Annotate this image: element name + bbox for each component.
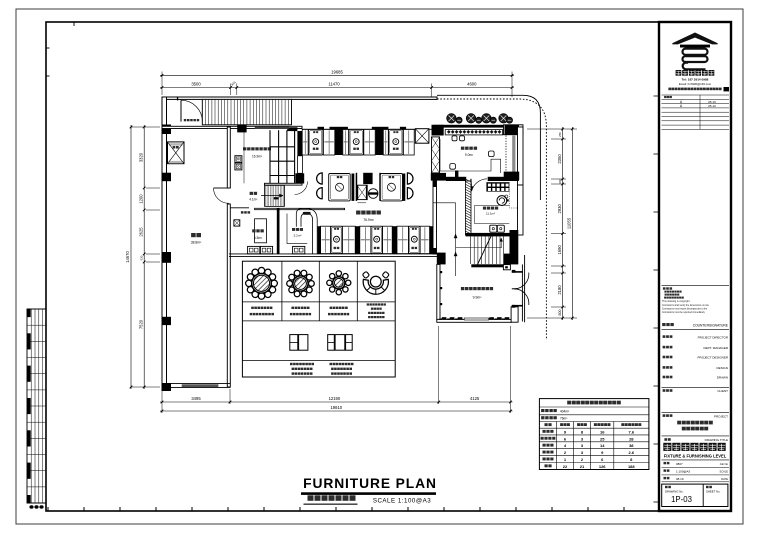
svg-text:DATE: DATE [721, 477, 728, 481]
svg-text:SCALE 1:100@A3: SCALE 1:100@A3 [373, 498, 431, 505]
svg-text:DRAWING No.: DRAWING No. [665, 489, 684, 493]
svg-text:1200: 1200 [138, 194, 143, 204]
svg-text:SHEET No.: SHEET No. [706, 489, 721, 493]
svg-text:16: 16 [600, 429, 605, 434]
svg-text:11470: 11470 [328, 82, 340, 87]
svg-text:COUNTERSIGNATURE: COUNTERSIGNATURE [693, 324, 729, 328]
svg-text:404m²: 404m² [560, 409, 569, 413]
svg-text:5.2m²: 5.2m² [294, 234, 302, 238]
svg-text:25: 25 [600, 436, 605, 441]
svg-text:3320: 3320 [138, 152, 143, 162]
svg-text:Contractors shall verify the d: Contractors shall verify the dimensions … [662, 304, 710, 307]
svg-text:188: 188 [628, 464, 635, 469]
svg-text:3495: 3495 [191, 396, 201, 401]
svg-text:PROJECT DESIGNER: PROJECT DESIGNER [698, 356, 729, 360]
svg-text:7.6: 7.6 [629, 429, 635, 434]
svg-text:0807: 0807 [676, 462, 683, 466]
svg-text:530: 530 [139, 255, 143, 260]
svg-text:4600: 4600 [467, 82, 477, 87]
svg-text:This drawing is copyright: This drawing is copyright [662, 300, 690, 303]
svg-text:76m²: 76m² [560, 417, 567, 421]
svg-text:DEPT. MANAGER: DEPT. MANAGER [703, 346, 728, 350]
svg-text:SCALE: SCALE [719, 469, 728, 473]
svg-text:76.9m²: 76.9m² [363, 218, 374, 222]
svg-text:05.10: 05.10 [708, 104, 716, 108]
svg-text:38.8m²: 38.8m² [191, 241, 202, 245]
svg-text:9.0m²: 9.0m² [465, 153, 473, 157]
svg-text:FIXTURE & FURNISHING LEVEL: FIXTURE & FURNISHING LEVEL [664, 453, 727, 458]
svg-text:22: 22 [563, 464, 568, 469]
svg-text:3500: 3500 [191, 82, 201, 87]
svg-text:FURNITURE PLAN: FURNITURE PLAN [303, 476, 437, 491]
svg-text:21: 21 [580, 464, 585, 469]
svg-text:Contractors must be reported i: Contractors must be reported immediately [662, 311, 706, 314]
svg-text:4125: 4125 [470, 396, 480, 401]
svg-text:250: 250 [558, 132, 562, 137]
svg-text:300: 300 [558, 179, 562, 184]
svg-text:7520: 7520 [138, 319, 143, 329]
svg-text:19810: 19810 [330, 405, 342, 410]
svg-text:2180: 2180 [557, 285, 562, 295]
svg-text:1690: 1690 [557, 244, 562, 254]
svg-text:1P-03: 1P-03 [671, 495, 692, 504]
svg-text:PROJECT DIRECTOR: PROJECT DIRECTOR [698, 335, 729, 339]
svg-text:11055: 11055 [567, 217, 572, 229]
svg-text:PROJECT: PROJECT [714, 414, 728, 418]
svg-text:Job No: Job No [720, 462, 729, 466]
svg-text:38: 38 [629, 443, 634, 448]
svg-text:Tel: 187 2914 0988: Tel: 187 2914 0988 [682, 77, 709, 81]
svg-text:2350: 2350 [557, 154, 562, 164]
svg-text:DRAWING TITLE: DRAWING TITLE [705, 438, 728, 442]
svg-text:2.6: 2.6 [629, 450, 635, 455]
svg-text:1:100@A3: 1:100@A3 [676, 469, 691, 473]
svg-text:4.5m²: 4.5m² [254, 236, 262, 240]
svg-text:12190: 12190 [329, 396, 341, 401]
svg-text:11.1m²: 11.1m² [486, 211, 495, 215]
svg-text:08.19: 08.19 [676, 477, 684, 481]
svg-text:28: 28 [629, 436, 634, 441]
svg-text:4.1m²: 4.1m² [249, 198, 257, 202]
svg-text:CLIENT: CLIENT [717, 389, 728, 393]
svg-text:Contractors must report discre: Contractors must report discrepancies to… [662, 307, 708, 310]
svg-text:19685: 19685 [331, 70, 343, 75]
svg-text:Email: hzh930@163.com: Email: hzh930@163.com [679, 82, 712, 86]
svg-text:126: 126 [599, 464, 606, 469]
svg-text:14: 14 [600, 443, 605, 448]
svg-text:16.9m²: 16.9m² [252, 154, 262, 158]
svg-text:800: 800 [558, 310, 562, 316]
svg-text:DESIGN: DESIGN [716, 366, 728, 370]
svg-text:2930: 2930 [557, 203, 562, 213]
svg-text:14670: 14670 [125, 251, 130, 263]
svg-text:DRAWN: DRAWN [717, 376, 728, 380]
svg-text:9.9m²: 9.9m² [473, 296, 483, 300]
svg-text:2625: 2625 [138, 227, 143, 237]
